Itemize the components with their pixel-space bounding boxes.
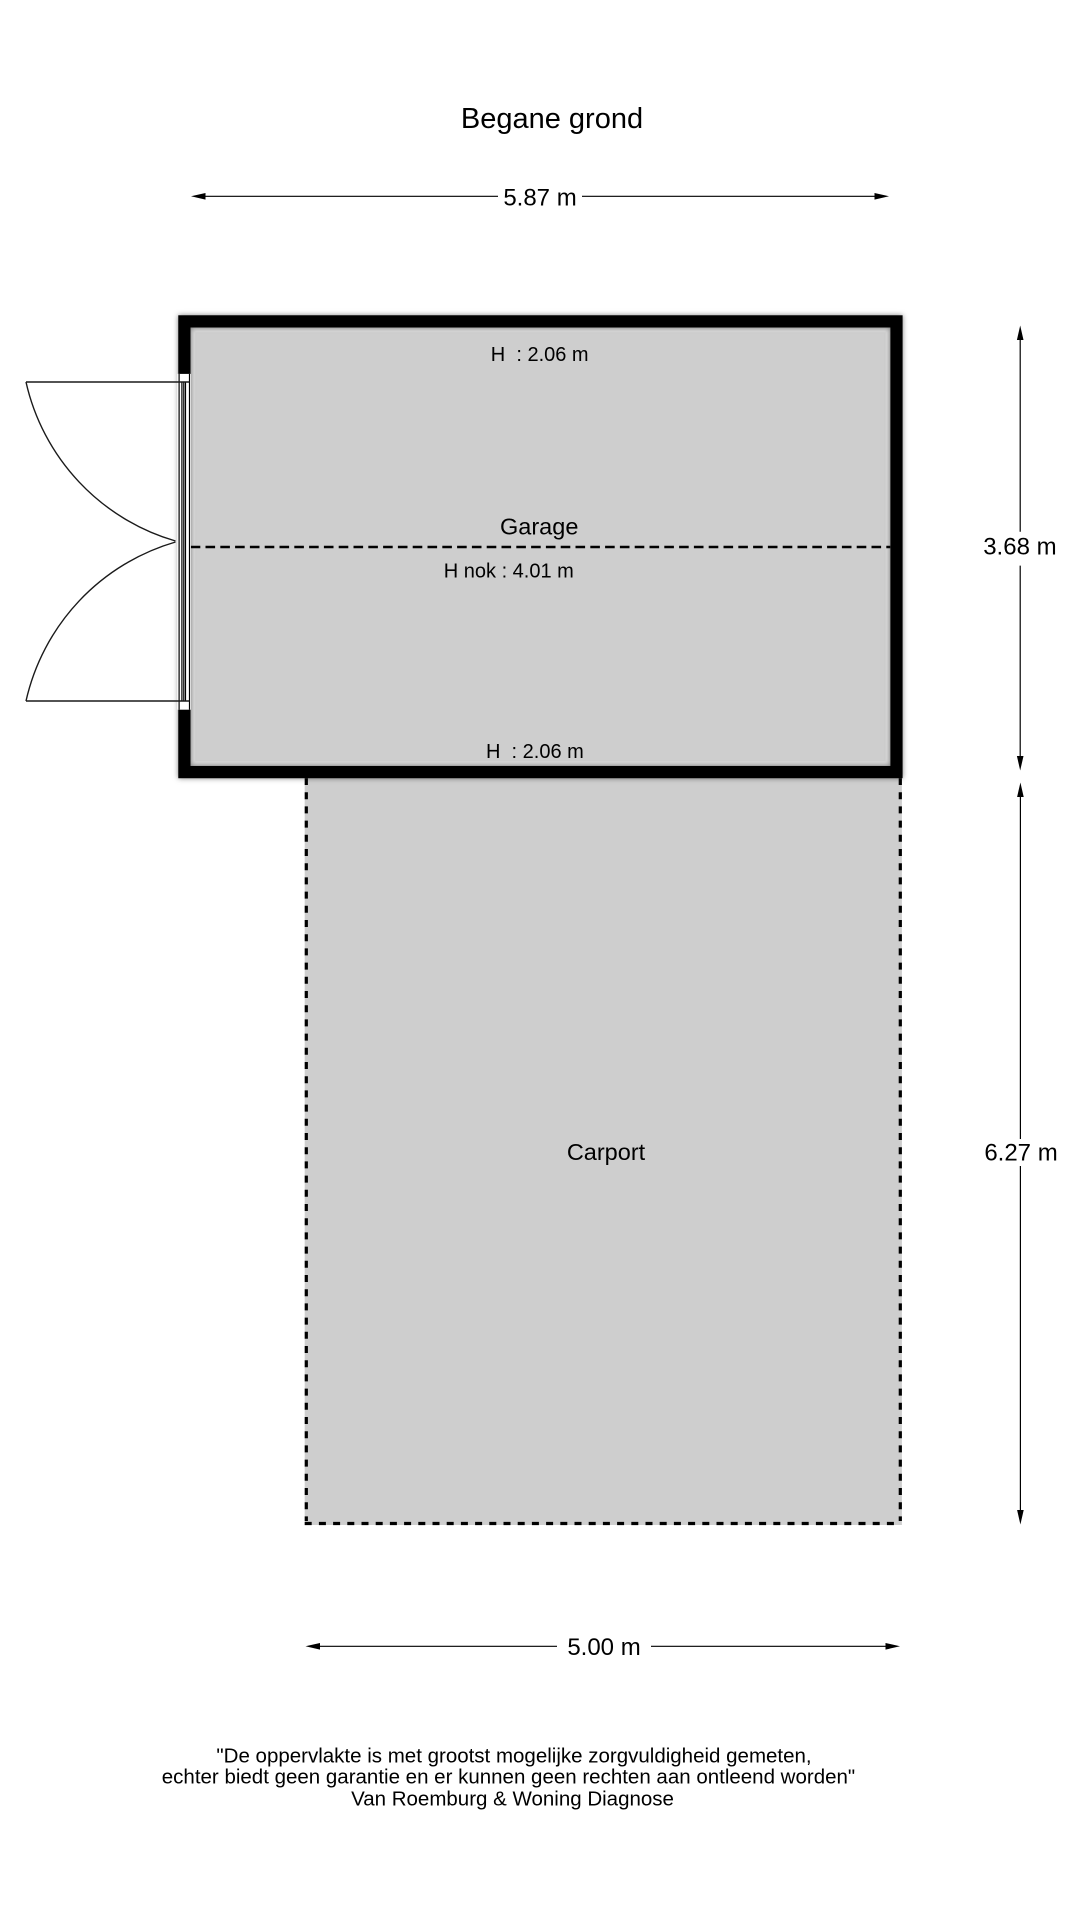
svg-text:echter biedt geen garantie en: echter biedt geen garantie en er kunnen …: [162, 1766, 855, 1789]
svg-text:Van Roemburg & Woning Diagnose: Van Roemburg & Woning Diagnose: [351, 1788, 674, 1811]
svg-text:Garage: Garage: [500, 514, 578, 540]
svg-text:5.00 m: 5.00 m: [567, 1634, 640, 1661]
svg-text:H nok : 4.01 m: H nok : 4.01 m: [444, 561, 574, 583]
svg-text:"De oppervlakte is met grootst: "De oppervlakte is met grootst mogelijke…: [216, 1745, 811, 1768]
svg-text:H : 2.06 m: H : 2.06 m: [491, 344, 589, 366]
svg-text:3.68 m: 3.68 m: [983, 533, 1056, 560]
svg-text:Carport: Carport: [567, 1139, 646, 1165]
svg-text:H : 2.06 m: H : 2.06 m: [486, 741, 584, 763]
svg-text:Begane grond: Begane grond: [461, 103, 643, 135]
svg-text:5.87 m: 5.87 m: [503, 185, 576, 212]
svg-text:6.27 m: 6.27 m: [984, 1140, 1057, 1167]
